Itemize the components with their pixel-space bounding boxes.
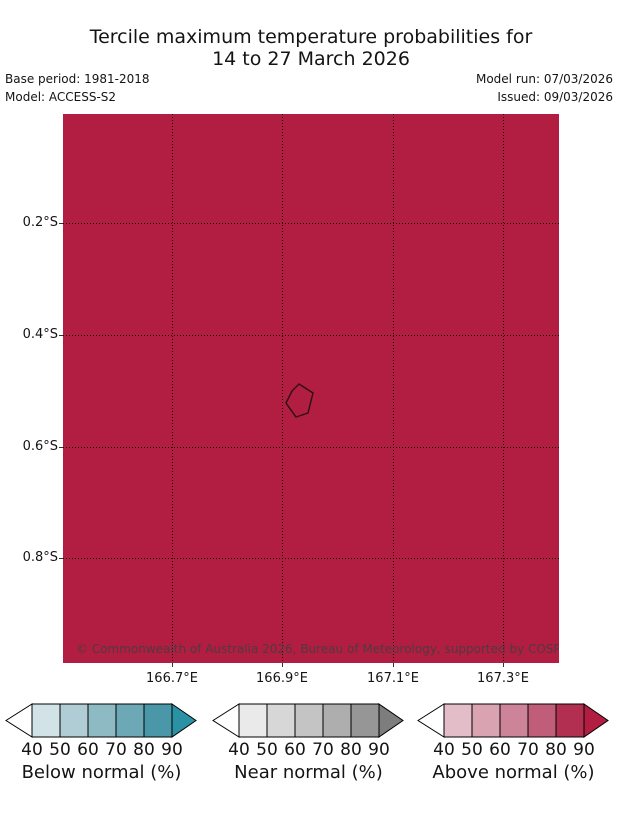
page-title-line2: 14 to 27 March 2026: [63, 48, 559, 70]
island-outline: [63, 114, 559, 663]
colorbar-tick-label: 40: [430, 740, 458, 760]
colorbar-near-normal-ticks: 40 50 60 70 80 90: [212, 739, 405, 760]
colorbar-tick-label: 80: [337, 740, 365, 760]
colorbar-tick-label: 80: [130, 740, 158, 760]
page-title-line1: Tercile maximum temperature probabilitie…: [63, 26, 559, 48]
x-axis-tick: [393, 663, 394, 667]
meta-right: Model run: 07/03/2026 Issued: 09/03/2026: [476, 70, 613, 106]
y-axis-tick-label: 0.8°S: [0, 550, 58, 565]
colorbar-tick-label: 90: [365, 740, 393, 760]
x-axis-tick: [172, 663, 173, 667]
colorbar-tick-label: 90: [158, 740, 186, 760]
colorbar-near-normal-label: Near normal (%): [212, 762, 405, 783]
x-axis-tick-label: 166.9°E: [237, 671, 327, 686]
colorbar-tick-label: 90: [570, 740, 598, 760]
colorbar-below-normal-ticks: 40 50 60 70 80 90: [5, 739, 198, 760]
copyright-text: © Commonwealth of Australia 2026, Bureau…: [76, 642, 559, 656]
colorbar-above-normal: 40 50 60 70 80 90 Above normal (%): [417, 703, 610, 783]
colorbar-above-normal-label: Above normal (%): [417, 762, 610, 783]
colorbar-tick-label: 40: [225, 740, 253, 760]
y-axis-tick-label: 0.4°S: [0, 327, 58, 342]
colorbar-tick-label: 70: [102, 740, 130, 760]
y-axis-tick-label: 0.2°S: [0, 215, 58, 230]
page-title: Tercile maximum temperature probabilitie…: [63, 26, 559, 70]
colorbar-near-normal: 40 50 60 70 80 90 Near normal (%): [212, 703, 405, 783]
colorbar-near-normal-scale: [212, 703, 405, 739]
colorbar-below-normal-label: Below normal (%): [5, 762, 198, 783]
y-axis-tick: [59, 558, 63, 559]
colorbar-tick-label: 80: [542, 740, 570, 760]
x-axis-tick: [282, 663, 283, 667]
colorbar-tick-label: 60: [281, 740, 309, 760]
colorbar-tick-label: 50: [253, 740, 281, 760]
x-axis-tick-label: 167.3°E: [458, 671, 548, 686]
model-text: Model: ACCESS-S2: [5, 88, 150, 106]
x-axis-tick-label: 167.1°E: [348, 671, 438, 686]
colorbar-tick-label: 50: [458, 740, 486, 760]
y-axis-tick: [59, 223, 63, 224]
colorbar-tick-label: 70: [309, 740, 337, 760]
colorbar-below-normal-scale: [5, 703, 198, 739]
meta-left: Base period: 1981-2018 Model: ACCESS-S2: [5, 70, 150, 106]
forecast-figure: Tercile maximum temperature probabilitie…: [0, 0, 621, 839]
issued-text: Issued: 09/03/2026: [476, 88, 613, 106]
base-period-text: Base period: 1981-2018: [5, 70, 150, 88]
colorbar-below-normal: 40 50 60 70 80 90 Below normal (%): [5, 703, 198, 783]
model-run-text: Model run: 07/03/2026: [476, 70, 613, 88]
colorbar-tick-label: 70: [514, 740, 542, 760]
map-plot: © Commonwealth of Australia 2026, Bureau…: [63, 114, 559, 663]
x-axis-tick-label: 166.7°E: [127, 671, 217, 686]
colorbar-above-normal-ticks: 40 50 60 70 80 90: [417, 739, 610, 760]
colorbar-tick-label: 40: [18, 740, 46, 760]
colorbar-above-normal-scale: [417, 703, 610, 739]
x-axis-tick: [503, 663, 504, 667]
colorbar-tick-label: 60: [486, 740, 514, 760]
colorbar-tick-label: 60: [74, 740, 102, 760]
colorbar-tick-label: 50: [46, 740, 74, 760]
y-axis-tick-label: 0.6°S: [0, 439, 58, 454]
y-axis-tick: [59, 335, 63, 336]
y-axis-tick: [59, 447, 63, 448]
